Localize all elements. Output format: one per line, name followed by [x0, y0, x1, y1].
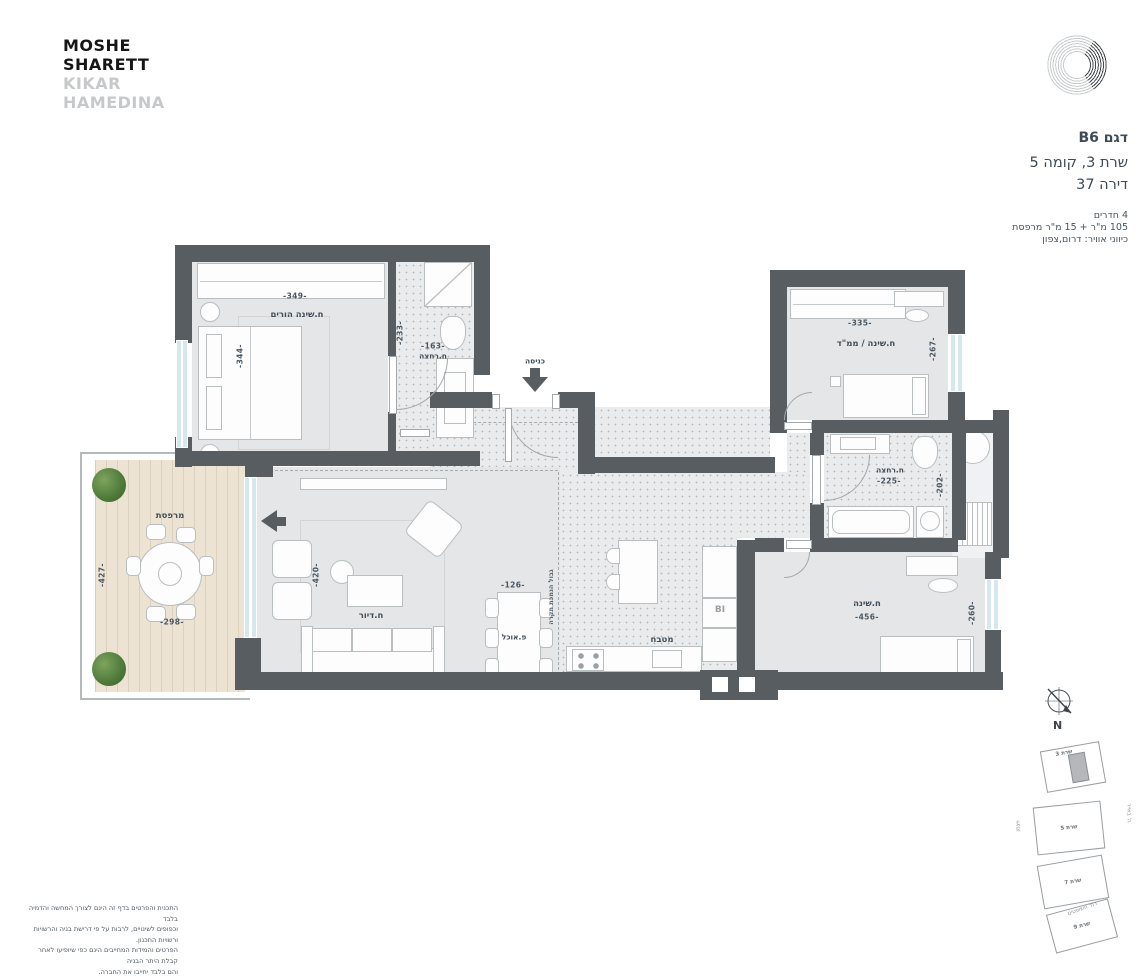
sofa-cushion	[352, 628, 392, 652]
entrance-arrow-stem	[530, 368, 540, 377]
bar-stool	[606, 548, 620, 564]
entrance-arrow-icon	[522, 377, 548, 392]
living-label: ח.דיור	[359, 611, 384, 621]
master-label: ח.שינה הורים	[271, 310, 324, 320]
site-building-sharett-3: שרת 3	[1040, 741, 1106, 793]
balcony-arrow-icon	[261, 510, 277, 532]
nightstand	[200, 302, 220, 322]
balcony-dim-h: -427-	[98, 563, 107, 587]
ceiling-drop-line	[265, 470, 558, 471]
window	[986, 579, 999, 630]
unit-info: דגם B6 שרת 3, קומה 5 דירה 37 4 חדרים 105…	[1012, 130, 1128, 245]
site-building-label: שרת 7	[1064, 878, 1082, 887]
page: { "brand": {"line1":"MOSHE","line2":"SHA…	[0, 0, 1148, 956]
dining-chair	[539, 628, 553, 648]
entrance-label: כניסה	[525, 357, 545, 366]
ring-logo-icon	[1047, 35, 1107, 95]
bath1-label: ח.רחצה	[419, 352, 447, 361]
washing-machine-door	[920, 511, 940, 531]
plant-icon	[92, 468, 126, 502]
wall	[388, 412, 396, 452]
balcony-chair	[126, 556, 141, 576]
tall-cabinet	[702, 628, 737, 662]
wall	[993, 410, 1009, 558]
door-jamb	[492, 394, 500, 409]
dining-chair	[485, 628, 499, 648]
nightstand	[830, 376, 841, 387]
bedroom3-label: ח.שינה	[853, 599, 881, 609]
door-jamb	[552, 394, 560, 409]
balcony-dim-w: -298-	[160, 618, 184, 627]
bed-pillow	[206, 334, 222, 378]
balcony-sliding-door	[244, 477, 257, 638]
disclaimer-line: וכפופים לשינויים, לרבות על פי דרישת בניה…	[20, 924, 178, 945]
wall	[175, 245, 490, 262]
bath-sink	[840, 437, 876, 450]
armchair	[272, 540, 312, 578]
unit-area: 105 מ"ר + 15 מ"ר מרפסת	[1012, 223, 1128, 233]
unit-building-floor: שרת 3, קומה 5	[1012, 155, 1128, 171]
ceiling-drop-line	[558, 472, 559, 670]
wall	[430, 392, 492, 408]
brand-line-4: HAMEDINA	[63, 93, 165, 112]
sofa-armrest	[301, 626, 313, 674]
sideboard	[300, 478, 447, 490]
bed-line	[250, 327, 251, 439]
sofa-cushion	[312, 628, 352, 652]
balcony-chair	[176, 527, 196, 543]
hall-right-floor	[737, 472, 810, 538]
site-plan: שרת 3 שרת 5 שרת 7 שרת 9 ויצמן ה' באייר ר…	[1015, 738, 1145, 943]
kitchen-island	[618, 540, 658, 604]
balcony-chair	[146, 524, 166, 540]
wall	[737, 540, 755, 690]
kitchen-sink	[652, 650, 682, 668]
bedroom3-dim-w: -456-	[855, 613, 879, 622]
balcony-label: מרפסת	[156, 511, 184, 521]
wall	[770, 270, 955, 287]
bedroom3-dim-h: -260-	[968, 601, 977, 625]
wall	[810, 433, 824, 455]
compass-icon: N	[1040, 686, 1084, 732]
wall	[578, 392, 595, 474]
unit-directions: כיווני אוויר: דרום,צפון	[1012, 235, 1128, 245]
dining-dim-w: -126-	[501, 581, 525, 590]
disclaimer-line: התכנית והפרטים בדף זה הינם לצורך המחשה ו…	[20, 903, 178, 924]
desk	[894, 291, 944, 307]
mamad-dim-w: -335-	[848, 319, 872, 328]
site-building-label: שרת 9	[1073, 921, 1091, 931]
bath2-dim-h: -202-	[936, 473, 945, 497]
highlighted-unit	[1068, 752, 1090, 784]
wall	[755, 538, 784, 552]
wall	[985, 552, 1001, 579]
sofa-armrest	[433, 626, 445, 674]
wall	[235, 638, 261, 674]
corridor-floor	[787, 433, 810, 472]
street-label-left: ויצמן	[1016, 820, 1022, 831]
wall	[952, 433, 966, 540]
sofa-cushion	[392, 628, 432, 652]
dining-label: פ.אוכל	[502, 633, 527, 642]
door-leaf	[786, 540, 812, 549]
wall	[235, 672, 755, 690]
brand-line-2: SHARETT	[63, 55, 165, 74]
window	[950, 334, 963, 392]
fridge-label: BI	[715, 605, 725, 615]
site-building-sharett-5: שרת 5	[1033, 801, 1106, 856]
desk	[906, 556, 958, 576]
wall	[770, 270, 787, 433]
balcony-chair	[199, 556, 214, 576]
wall	[474, 245, 490, 375]
shower-diagonal	[424, 262, 472, 307]
wall	[812, 420, 1008, 433]
window	[176, 340, 188, 448]
wall	[595, 457, 775, 473]
stove	[572, 649, 604, 671]
living-dim-h: -420-	[312, 563, 321, 587]
wall	[948, 270, 965, 334]
toilet	[912, 436, 938, 469]
bar-stool	[606, 574, 620, 590]
dining-chair	[485, 598, 499, 618]
door-leaf	[784, 422, 812, 430]
bath2-dim-w: -225-	[877, 477, 901, 486]
bed-pillow	[206, 386, 222, 430]
master-dim-h: -344-	[236, 344, 245, 368]
wall	[175, 245, 192, 343]
wardrobe-line	[200, 281, 382, 282]
door-leaf	[812, 455, 821, 505]
desk-chair	[928, 578, 958, 593]
bath2-label: ח.רחצה	[876, 466, 904, 475]
kitchen-label: מטבח	[651, 635, 674, 645]
pillar-niche	[712, 677, 728, 692]
compass: N	[1040, 686, 1084, 732]
tall-cabinet	[702, 546, 737, 598]
mamad-dim-h: -267-	[929, 337, 938, 361]
wall	[810, 538, 958, 552]
brand-line-1: MOSHE	[63, 36, 165, 55]
unit-model: דגם B6	[1012, 130, 1128, 146]
balcony-arrow-stem	[277, 517, 286, 526]
pillar-niche	[739, 677, 755, 692]
master-dim-w: -349-	[283, 292, 307, 301]
ring-logo-hole	[1065, 53, 1089, 77]
desk-chair	[905, 309, 929, 322]
bath1-dim-h: -233-	[396, 321, 405, 345]
armchair	[272, 582, 312, 620]
side-table	[347, 575, 403, 607]
unit-rooms: 4 חדרים	[1012, 211, 1128, 221]
brand-line-3: KIKAR	[63, 74, 165, 93]
project-logo-text: MOSHE SHARETT KIKAR HAMEDINA	[63, 36, 165, 112]
street-label-right: ה' באייר	[1126, 803, 1132, 822]
wardrobe-line	[793, 304, 903, 305]
bath1-dim-w: -163-	[421, 342, 445, 351]
ceiling-note-label: גבול הנמכת תקרה	[547, 569, 555, 624]
wall	[245, 451, 273, 477]
wall	[175, 451, 480, 466]
balcony-table-center	[158, 562, 182, 586]
plant-icon	[92, 652, 126, 686]
bathtub-inner	[832, 510, 910, 534]
disclaimer-line: והם בלבד יחייבו את החברה.	[20, 967, 178, 977]
unit-apartment: דירה 37	[1012, 177, 1128, 193]
door-leaf	[505, 408, 512, 462]
mamad-label: ח.שינה / ממ"ד	[837, 339, 895, 349]
disclaimer: התכנית והפרטים בדף זה הינם לצורך המחשה ו…	[20, 903, 178, 977]
door-leaf	[400, 429, 430, 437]
site-building-label: שרת 5	[1060, 824, 1078, 832]
bed-pillow	[912, 377, 926, 415]
compass-north-label: N	[1053, 719, 1062, 732]
